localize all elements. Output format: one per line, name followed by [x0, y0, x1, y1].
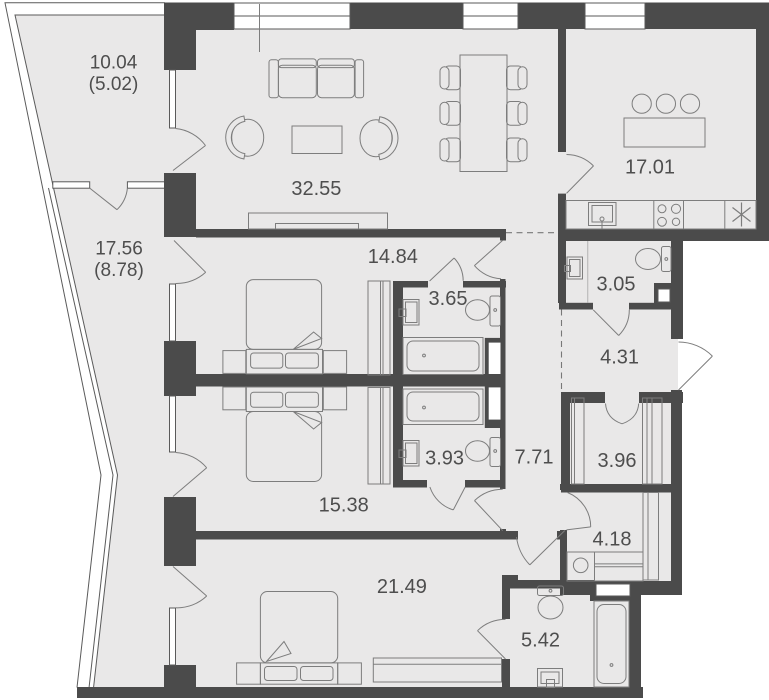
- svg-text:17.56: 17.56: [95, 239, 143, 260]
- svg-text:7.71: 7.71: [515, 447, 554, 469]
- svg-text:3.93: 3.93: [425, 448, 464, 470]
- svg-text:3.96: 3.96: [598, 450, 637, 472]
- svg-text:5.42: 5.42: [521, 630, 560, 652]
- svg-text:14.84: 14.84: [368, 246, 418, 268]
- svg-text:3.05: 3.05: [597, 274, 636, 296]
- svg-text:(5.02): (5.02): [89, 74, 139, 95]
- svg-text:17.01: 17.01: [625, 157, 675, 179]
- svg-text:(8.78): (8.78): [94, 260, 144, 281]
- svg-text:32.55: 32.55: [291, 178, 341, 200]
- svg-text:10.04: 10.04: [90, 53, 138, 74]
- svg-text:3.65: 3.65: [429, 288, 468, 310]
- svg-text:4.18: 4.18: [593, 529, 632, 551]
- svg-text:4.31: 4.31: [600, 347, 639, 369]
- svg-text:21.49: 21.49: [377, 576, 427, 598]
- svg-text:15.38: 15.38: [319, 495, 369, 517]
